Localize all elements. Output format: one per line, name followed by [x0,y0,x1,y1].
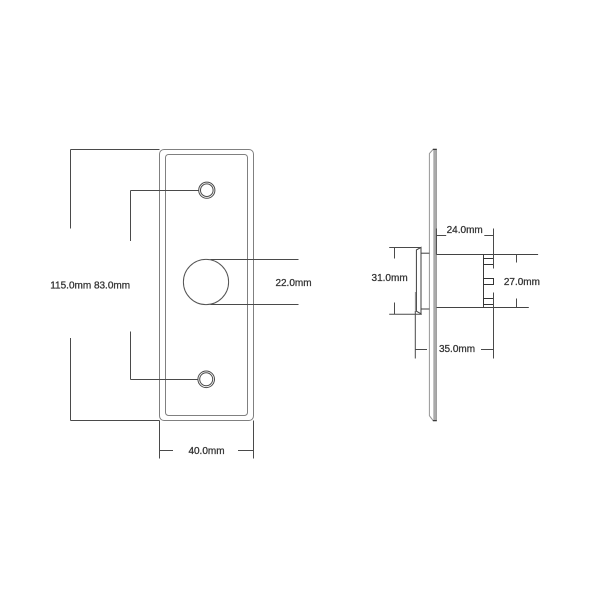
svg-text:31.0mm: 31.0mm [372,273,408,284]
svg-text:22.0mm: 22.0mm [275,278,311,289]
svg-text:24.0mm: 24.0mm [447,225,483,236]
svg-text:40.0mm: 40.0mm [188,446,224,457]
svg-text:83.0mm: 83.0mm [94,280,130,291]
svg-text:27.0mm: 27.0mm [504,277,540,288]
svg-text:35.0mm: 35.0mm [439,344,475,355]
svg-text:115.0mm: 115.0mm [50,280,91,291]
